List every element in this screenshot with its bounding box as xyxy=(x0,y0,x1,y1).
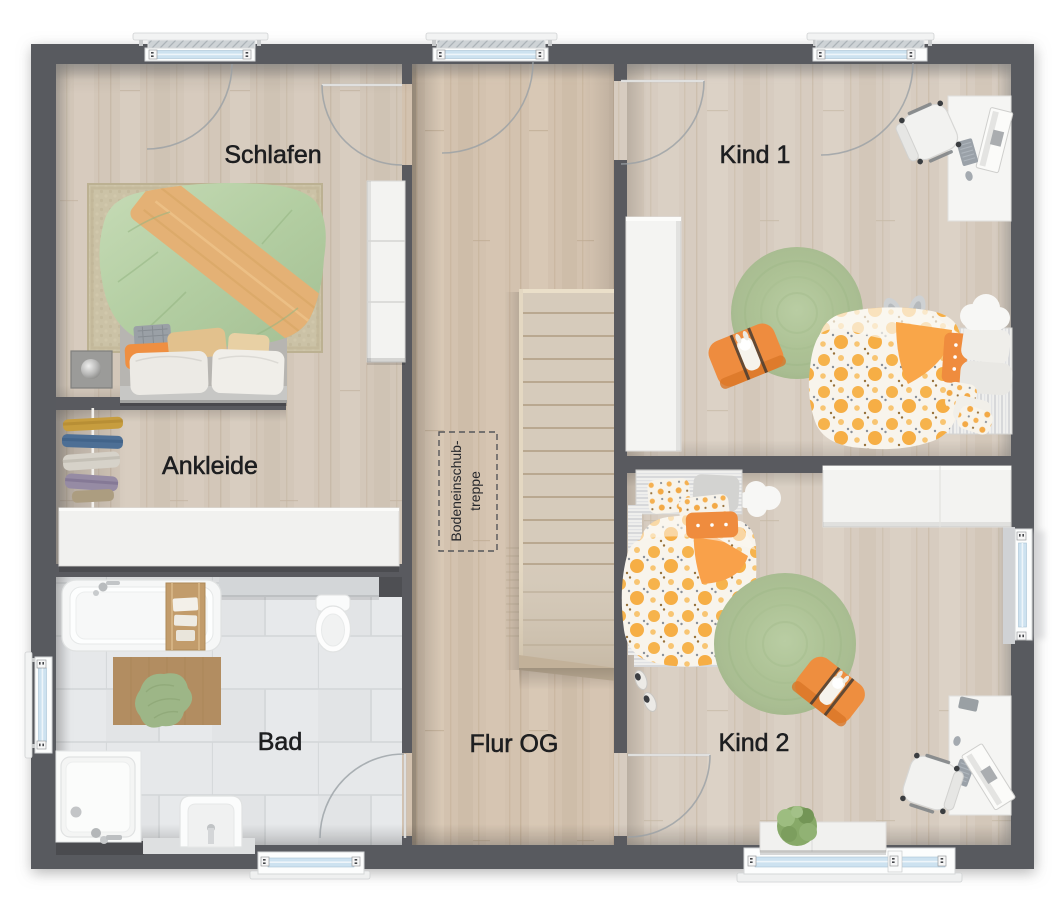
svg-text:Kind 2: Kind 2 xyxy=(719,729,790,757)
svg-text:Flur OG: Flur OG xyxy=(470,730,559,758)
svg-text:Ankleide: Ankleide xyxy=(162,452,258,480)
svg-text:Bodeneinschub-: Bodeneinschub- xyxy=(448,440,464,542)
svg-text:Schlafen: Schlafen xyxy=(224,141,321,169)
svg-text:treppe: treppe xyxy=(467,471,483,511)
svg-text:Bad: Bad xyxy=(258,728,302,756)
svg-text:Kind 1: Kind 1 xyxy=(720,141,791,169)
